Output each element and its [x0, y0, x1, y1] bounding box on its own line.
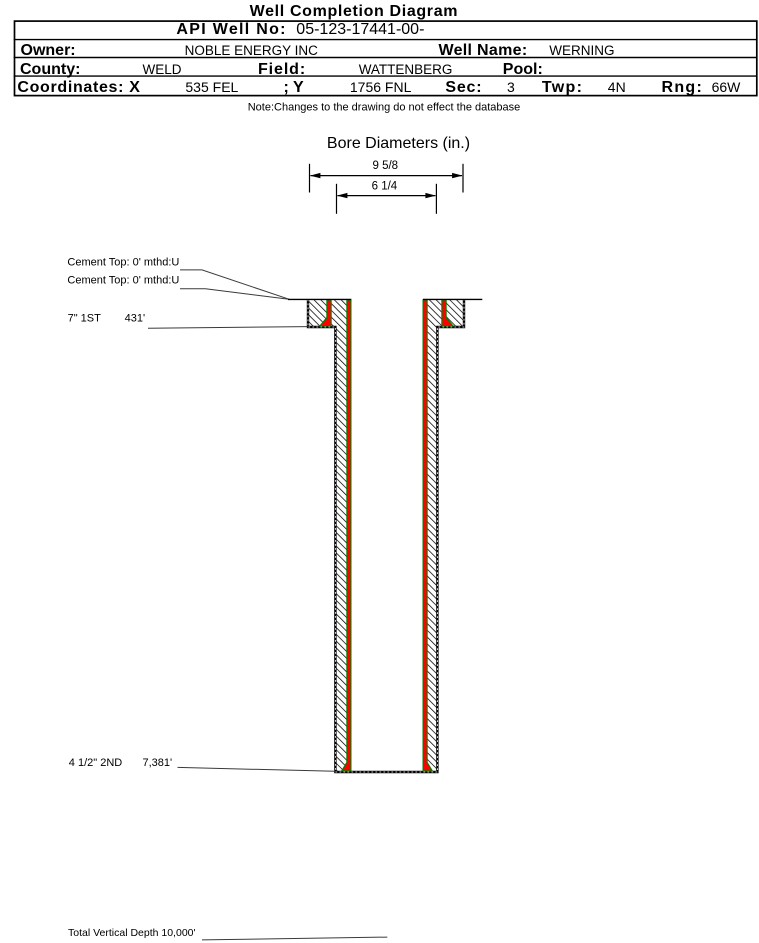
svg-text:6 1/4: 6 1/4 — [372, 180, 398, 192]
svg-text:9 5/8: 9 5/8 — [373, 160, 399, 172]
svg-text:Twp:: Twp: — [542, 79, 583, 96]
svg-text:Rng:: Rng: — [662, 79, 704, 96]
svg-text:Sec:: Sec: — [445, 79, 482, 96]
svg-text:WELD: WELD — [143, 62, 182, 77]
svg-text:Well Name:: Well Name: — [439, 42, 528, 59]
svg-text:; Y: ; Y — [284, 79, 304, 96]
svg-text:7,381': 7,381' — [143, 757, 173, 769]
svg-text:Note:Changes to the drawing do: Note:Changes to the drawing do not effec… — [248, 101, 521, 113]
svg-text:05-123-17441-00-: 05-123-17441-00- — [296, 21, 424, 38]
svg-text:Pool:: Pool: — [503, 61, 543, 78]
svg-text:API Well No:: API Well No: — [176, 21, 286, 38]
svg-text:Well Completion Diagram: Well Completion Diagram — [250, 3, 458, 20]
svg-text:WERNING: WERNING — [549, 43, 614, 58]
svg-text:3: 3 — [507, 79, 515, 95]
svg-text:1756 FNL: 1756 FNL — [350, 79, 412, 95]
svg-text:Cement Top: 0' mthd:U: Cement Top: 0' mthd:U — [67, 274, 179, 286]
svg-text:535 FEL: 535 FEL — [185, 79, 238, 95]
svg-text:4N: 4N — [608, 79, 626, 95]
svg-text:County:: County: — [20, 61, 80, 78]
svg-text:Field:: Field: — [258, 61, 306, 78]
svg-text:7" 1ST: 7" 1ST — [68, 313, 102, 325]
svg-text:Bore Diameters (in.): Bore Diameters (in.) — [327, 135, 470, 152]
svg-text:4 1/2" 2ND: 4 1/2" 2ND — [69, 757, 122, 769]
svg-text:Total Vertical Depth 10,000': Total Vertical Depth 10,000' — [68, 927, 196, 939]
svg-text:431': 431' — [125, 313, 145, 325]
svg-text:Coordinates: X: Coordinates: X — [17, 79, 140, 96]
svg-text:Owner:: Owner: — [21, 42, 76, 59]
svg-text:WATTENBERG: WATTENBERG — [359, 62, 453, 77]
svg-text:NOBLE ENERGY INC: NOBLE ENERGY INC — [185, 43, 319, 58]
svg-text:66W: 66W — [712, 79, 742, 95]
svg-text:Cement Top: 0' mthd:U: Cement Top: 0' mthd:U — [67, 257, 179, 269]
